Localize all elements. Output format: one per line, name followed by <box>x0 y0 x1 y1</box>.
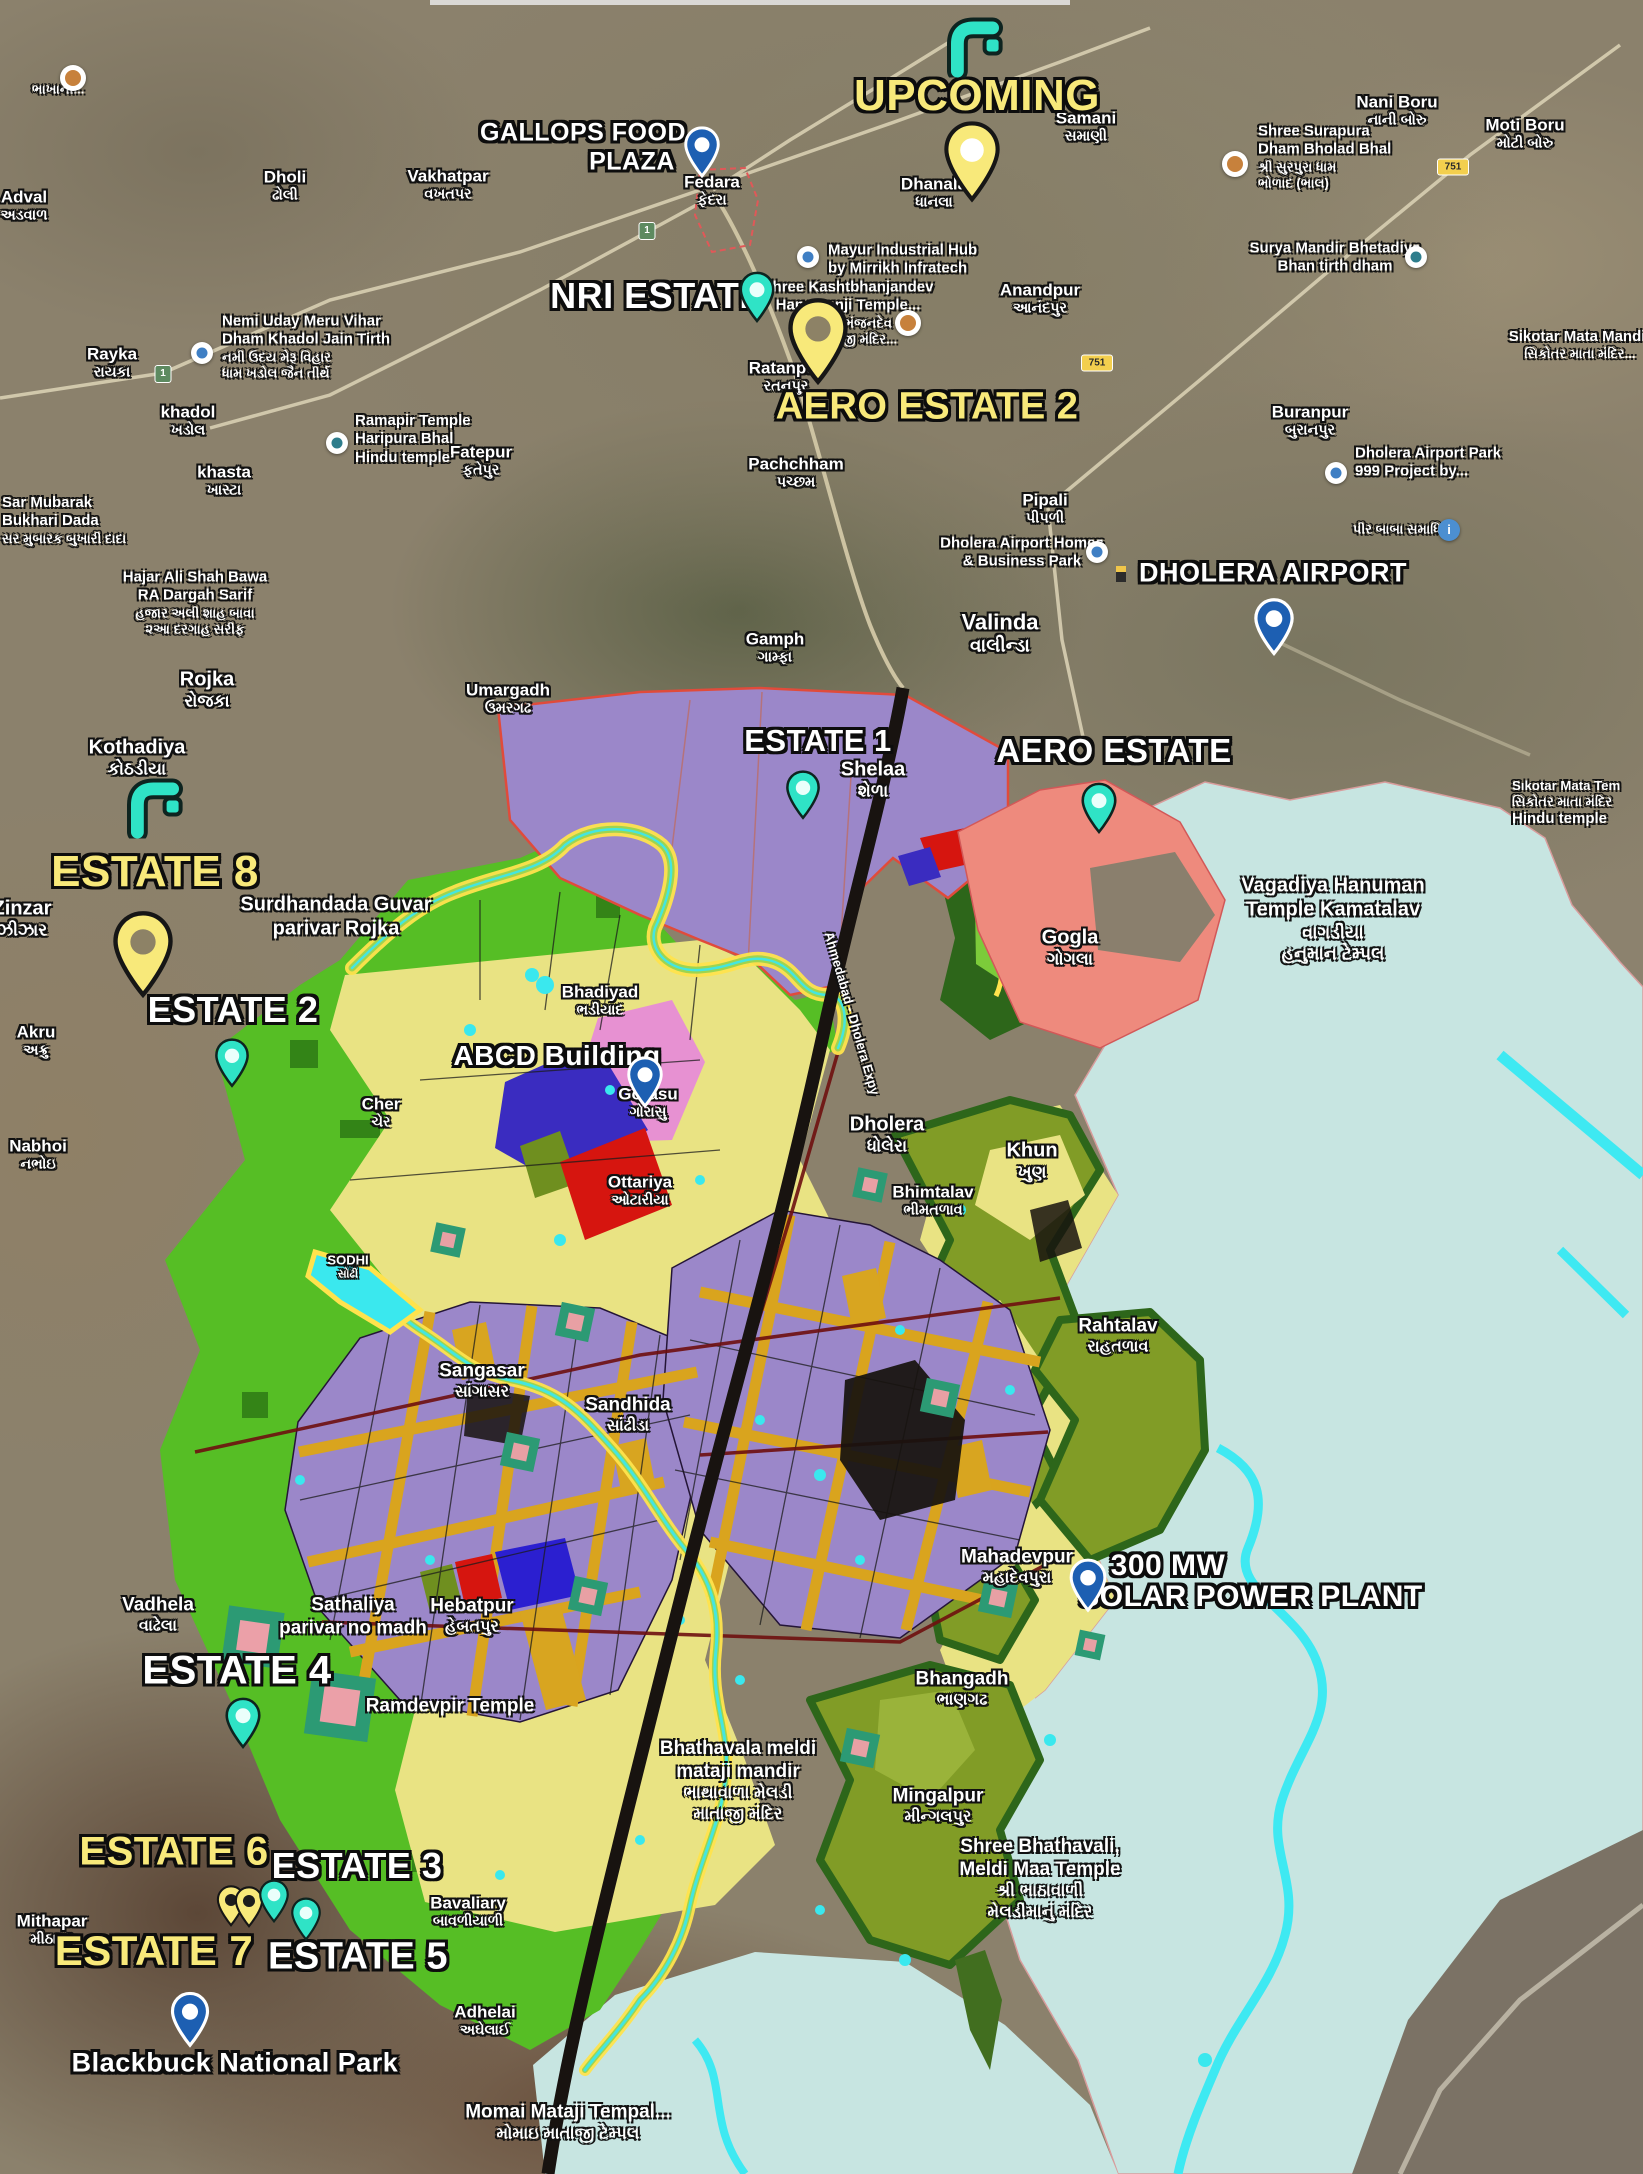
place-label-bavaliary: Bavaliaryબાવળીયાળી <box>430 1894 506 1930</box>
place-label-khasta: khastaખાસ્ટા <box>197 463 251 499</box>
estate-label-aero-estate: AERO ESTATE <box>996 732 1231 770</box>
place-label-dholi: Dholiઢોલી <box>264 168 307 204</box>
photo-poi-icon[interactable] <box>895 310 921 336</box>
estate-label-300-mw: 300 MW <box>1111 1549 1226 1583</box>
map-pin-estate-7[interactable] <box>169 1992 211 2048</box>
place-label-hebatpur: Hebatpurહેબતપુર <box>430 1596 513 1636</box>
map-pin-aero-estate-2[interactable] <box>785 298 851 386</box>
upcoming-arrow-icon <box>943 14 1007 83</box>
place-label-nabhoi: Nabhoiનભોઇ <box>9 1137 67 1173</box>
place-label-bhadiyad: Bhadiyadભડીયાદ <box>562 983 639 1019</box>
place-label-bhangadh: Bhangadhભાણગઢ <box>916 1669 1009 1709</box>
info-poi-icon[interactable]: i <box>1438 519 1460 541</box>
place-label-gogla: Goglaગોગલા <box>1042 927 1099 970</box>
estate-label-aero-estate-2: AERO ESTATE 2 <box>776 386 1079 429</box>
poi-label-dholera-airport-park: Dholera Airport Park999 Project by... <box>1355 444 1501 481</box>
estate-label-estate-3: ESTATE 3 <box>272 1845 443 1887</box>
estate-label-estate-8: ESTATE 8 <box>51 847 259 897</box>
map-pin-estate-2[interactable] <box>213 1038 251 1088</box>
estate-label-blackbuck-national-park: Blackbuck National Park <box>72 2048 399 2079</box>
photo-poi-icon[interactable] <box>60 65 86 91</box>
place-label-valinda: Valindaવાલીન્ડા <box>961 610 1038 657</box>
place-label-sodhi: SODHIસોઢી <box>327 1254 368 1282</box>
poi-label-shree-bhathavali: Shree Bhathavali,Meldi Maa Templeશ્રી ભા… <box>959 1835 1120 1922</box>
poi-label-sar-mubarak: Sar MubarakBukhari Dadaસર મુબારક બુખારી … <box>2 494 126 547</box>
place-label-khadol: khadolખડોલ <box>161 403 216 439</box>
estate-label-solar-power-plant: SOLAR POWER PLANT <box>1079 1580 1423 1614</box>
map-pin-estate-5[interactable] <box>290 1897 323 1941</box>
road-shield-751: 751 <box>1437 159 1469 176</box>
map-pin-estate-1[interactable] <box>784 770 822 820</box>
place-label-zinzar: Zinzarઝીઝાર <box>0 898 51 941</box>
place-label-adval: Advalઅડવાળ <box>1 188 48 224</box>
place-label-cher: Cherચેર <box>362 1095 401 1131</box>
poi-label-sathaliya: Sathaliyaparivar no madh <box>279 1593 427 1639</box>
poi-label-ramapir-temple: Ramapir TempleHaripura BhalHindu temple <box>355 412 471 467</box>
poi-label-vagadiya-hanuman: Vagadiya HanumanTemple Kamatalavવાગડીયાહ… <box>1241 873 1424 965</box>
poi-label-s-kotar-mata-tem: Sıkotar Mata Temસિકોતર માતા મંદિરHindu t… <box>1512 778 1620 828</box>
estate-label-plaza: PLAZA <box>589 148 675 177</box>
dot-poi-icon[interactable] <box>797 246 819 268</box>
road-shield-1: 1 <box>639 222 656 240</box>
estate-8-arrow-icon <box>123 775 187 844</box>
poi-label-nemi-uday-meru-vihar: Nemi Uday Meru ViharDham Khadol Jain Tir… <box>222 312 390 381</box>
poi-label-dholera-airport-homes: Dholera Airport Homes& Business Park <box>940 534 1104 571</box>
map-pin-aero-estate[interactable] <box>1080 782 1119 834</box>
estate-label-estate-6: ESTATE 6 <box>79 1830 268 1875</box>
place-label-vadhela: Vadhelaવાઢેલા <box>122 1595 194 1635</box>
place-label-kothadiya: Kothadiyaકોઠડીયા <box>89 737 186 780</box>
place-label-rahtalav: Rahtalavરાહતળાવ <box>1078 1316 1157 1356</box>
estate-label-estate-7: ESTATE 7 <box>55 1927 253 1975</box>
om-poi-icon[interactable] <box>326 432 348 454</box>
place-label-umargadh: Umargadhઉમરગઢ <box>466 681 550 717</box>
poi-label-sikotar-mata-mandir: Sikotar Mata Mandirસિકોતર માતા મંદિર... <box>1509 328 1643 362</box>
place-label-buranpur: Buranpurબુરાનપુર <box>1272 403 1349 439</box>
estate-label-gallops-food: GALLOPS FOOD <box>480 119 686 148</box>
map-pin-estate-3[interactable] <box>258 1879 291 1923</box>
map-canvas[interactable]: Ahmedabad - Dholera Expy DholiઢોલીVakhat… <box>0 0 1643 2174</box>
poi-label-shree-surapura: Shree SurapuraDham Bholad Bhalશ્રી સુરપુ… <box>1258 122 1391 191</box>
map-pin-nri-estate[interactable] <box>738 271 777 323</box>
place-label-adhelai: Adhelaiઅઘેલાઈ <box>454 2003 515 2039</box>
dot-poi-icon[interactable] <box>191 342 213 364</box>
map-pin-estate-4[interactable] <box>224 1697 263 1749</box>
estate-label-estate-4: ESTATE 4 <box>142 1649 331 1694</box>
poi-label-mayur-industrial-hub: Mayur Industrial Hubby Mirrikh Infratech <box>828 241 977 278</box>
estate-label-dholera-airport: DHOLERA AIRPORT <box>1139 558 1407 589</box>
road-shield-1: 1 <box>155 365 172 383</box>
place-label-bhimtalav: Bhimtalavભીમતળાવ <box>892 1183 973 1219</box>
place-label-mingalpur: Mingalpurમીન્ગલપુર <box>893 1786 984 1826</box>
road-shield-751: 751 <box>1081 355 1113 372</box>
annotation-layer: Ahmedabad - Dholera Expy DholiઢોલીVakhat… <box>0 0 1643 2174</box>
place-label-sangasar: Sangasarસાંગાસર <box>439 1361 525 1401</box>
place-label-anandpur: Anandpurઆનંદપુર <box>1000 281 1080 317</box>
map-pin-solar-power-plant[interactable] <box>1068 1558 1109 1612</box>
poi-label-momai-mataji-tempal: Momai Mataji Tempal...મોમાઇ માતાજી ટેમ્પ… <box>465 2101 671 2145</box>
estate-label-estate-1: ESTATE 1 <box>744 723 892 759</box>
map-pin-estate-8[interactable] <box>110 911 176 999</box>
place-label-pachchham: Pachchhamપચ્છમ <box>748 455 843 491</box>
place-label-sandhida: Sandhidaસાંઢીડા <box>585 1395 671 1435</box>
place-label-ottariya: Ottariyaઓટારીયા <box>608 1173 672 1209</box>
place-label-mahadevpur: Mahadevpurમહાદેવપુરા <box>961 1547 1073 1587</box>
poi-label-label: પીર બાબા સમાધિ <box>1353 522 1441 538</box>
poi-label-hajar-ali-shah-bawa: Hajar Ali Shah BawaRA Dargah Sarifહજાર અ… <box>123 568 268 637</box>
om-poi-icon[interactable] <box>1405 246 1427 268</box>
estate-label-estate-5: ESTATE 5 <box>268 1936 448 1979</box>
map-pin-gallops-food-plaza[interactable] <box>683 126 722 178</box>
photo-poi-icon[interactable] <box>1222 151 1248 177</box>
poi-label-surya-mandir-bhetadiya: Surya Mandir BhetadiyaBhan tirth dham <box>1250 239 1421 276</box>
place-label-gamph: Gamphગામ્ફા <box>746 630 805 666</box>
place-label-rayka: Raykaરાયકા <box>87 345 137 381</box>
dot-poi-icon[interactable] <box>1086 541 1108 563</box>
map-pin-upcoming[interactable] <box>941 121 1003 203</box>
place-label-akru: Akruઅક્રુ <box>17 1023 56 1059</box>
expressway-label: Ahmedabad - Dholera Expy <box>822 930 883 1097</box>
poi-label-ramdevpir-temple: Ramdevpir Temple <box>366 1695 535 1718</box>
poi-label-bhathavala-meldi: Bhathavala meldimataji mandirભાથાવાળા મે… <box>660 1737 816 1824</box>
dot-poi-icon[interactable] <box>1325 462 1347 484</box>
place-label-khun: Khunખુણ <box>1006 1140 1057 1183</box>
estate-label-nri-estate: NRI ESTATE <box>550 275 764 317</box>
place-label-dholera: Dholeraધોલેરા <box>850 1114 924 1157</box>
map-pin-dholera-airport[interactable] <box>1252 598 1296 656</box>
place-label-rojka: Rojkaરોજકા <box>180 669 234 712</box>
place-label-shelaa: Shelaaશેળા <box>841 759 905 802</box>
place-label-moti-boru: Moti Boruમોટી બોરુ <box>1485 116 1564 152</box>
poi-label-surdhandada-guvar: Surdhandada Guvarparivar Rojka <box>240 892 431 941</box>
map-pin-abcd-building[interactable] <box>626 1056 665 1108</box>
place-label-vakhatpar: Vakhatparવખતપર <box>407 167 488 203</box>
place-label-pipali: Pipaliપીપળી <box>1022 491 1067 527</box>
